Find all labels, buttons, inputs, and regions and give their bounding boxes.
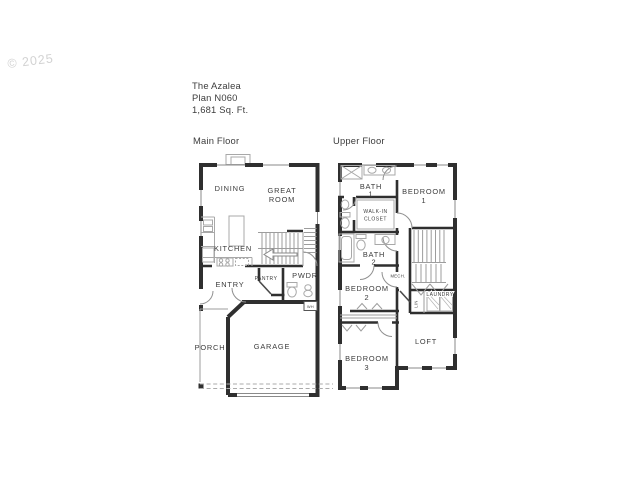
kitchen-island — [229, 216, 244, 246]
wh-label: WH — [307, 305, 314, 309]
upper-stairs — [412, 230, 448, 295]
garage-entry-door-arc — [232, 288, 246, 302]
plan-title: The Azalea — [192, 80, 241, 91]
main-room-labels: DINING GREAT ROOM KITCHEN ENTRY PANTRY P… — [195, 184, 318, 352]
upper-floor-plan: Upper Floor — [333, 135, 457, 390]
plan-number: Plan N060 — [192, 92, 238, 103]
garage-door — [237, 394, 309, 397]
room-label-dining: DINING — [215, 184, 246, 193]
front-door-arc — [200, 291, 213, 304]
room-label-mech: MECH. — [391, 274, 406, 279]
room-label-porch: PORCH — [195, 343, 226, 352]
room-label-bed2-1: BEDROOM — [345, 284, 389, 293]
floor-plan-image: © 2025 The Azalea Plan N060 1,681 Sq. Ft… — [0, 0, 640, 480]
room-label-lin: LIN — [414, 300, 419, 307]
upper-room-labels: BATH 1 BEDROOM 1 WALK-IN CLOSET BATH 2 B… — [345, 182, 454, 372]
upper-floor-label: Upper Floor — [333, 135, 385, 146]
room-label-walkin-2: CLOSET — [364, 217, 387, 223]
closet-shelving — [340, 304, 397, 332]
main-windows — [201, 165, 318, 236]
laundry-door-leaf — [400, 291, 410, 302]
copyright-watermark: © 2025 — [7, 51, 55, 71]
room-label-bed3-1: BEDROOM — [345, 354, 389, 363]
sink — [305, 285, 311, 291]
room-label-bed1-1: BEDROOM — [402, 187, 446, 196]
room-label-loft: LOFT — [415, 337, 437, 346]
room-label-kitchen: KITCHEN — [214, 244, 252, 253]
room-label-bed2-2: 2 — [365, 293, 370, 302]
room-label-great-1: GREAT — [268, 186, 297, 195]
toilet — [288, 287, 297, 297]
main-floor-label: Main Floor — [193, 135, 239, 146]
floor-plan-page: © 2025 The Azalea Plan N060 1,681 Sq. Ft… — [0, 0, 640, 480]
toilet — [357, 240, 365, 250]
room-label-great-2: ROOM — [269, 195, 295, 204]
pedestal-sink — [341, 200, 349, 209]
kitchen-fixtures — [201, 216, 252, 266]
main-stairs — [258, 229, 317, 267]
water-heater: WH — [304, 302, 317, 311]
plan-sqft: 1,681 Sq. Ft. — [192, 104, 248, 115]
dishwasher — [236, 259, 249, 266]
title-block: The Azalea Plan N060 1,681 Sq. Ft. — [192, 80, 248, 115]
room-label-bath2-2: 2 — [372, 258, 377, 267]
kitchen-sink — [204, 220, 213, 225]
room-label-garage: GARAGE — [254, 342, 290, 351]
room-label-bath1-2: 1 — [369, 190, 374, 199]
main-floor-plan: Main Floor — [193, 135, 333, 397]
fridge — [203, 248, 215, 262]
room-label-laundry: LAUNDRY — [426, 292, 453, 298]
room-label-walkin-1: WALK-IN — [363, 209, 387, 215]
room-label-bed1-2: 1 — [422, 196, 427, 205]
room-label-pantry: PANTRY — [255, 276, 278, 282]
room-label-bed3-2: 3 — [365, 363, 370, 372]
room-label-entry: ENTRY — [216, 280, 245, 289]
stair-direction-arrow — [264, 249, 297, 260]
pantry-door-leaf — [259, 281, 271, 294]
toilet — [341, 218, 349, 229]
powder-fixtures — [287, 283, 312, 298]
driveway-dashes — [200, 384, 333, 389]
powder-door-arc — [303, 252, 317, 266]
room-label-pwdr: PWDR — [292, 271, 318, 280]
